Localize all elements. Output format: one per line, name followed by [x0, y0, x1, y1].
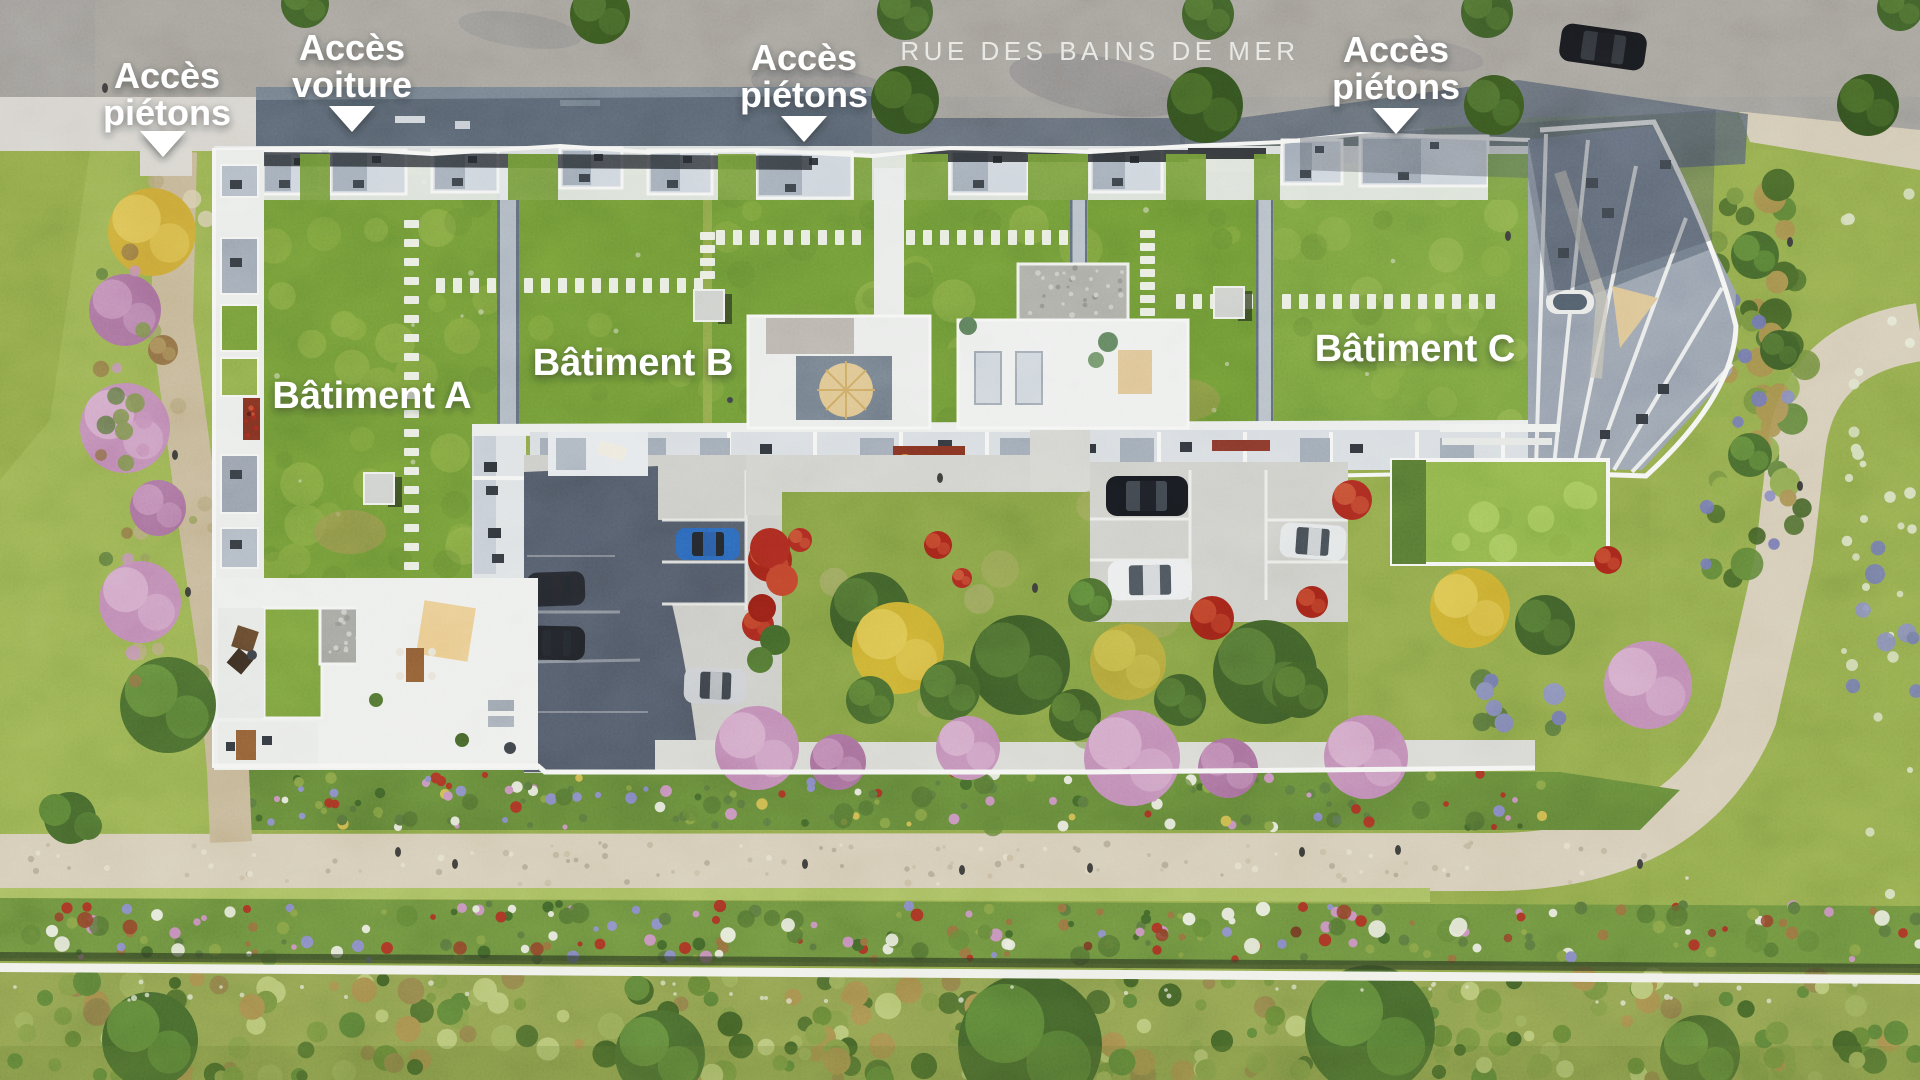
svg-text:piétons: piétons	[103, 92, 231, 133]
svg-text:Accès: Accès	[299, 27, 405, 68]
svg-text:Bâtiment A: Bâtiment A	[272, 375, 471, 417]
svg-text:Accès: Accès	[751, 37, 857, 78]
svg-text:Accès: Accès	[1343, 29, 1449, 70]
svg-text:piétons: piétons	[1332, 66, 1460, 107]
svg-text:voiture: voiture	[292, 64, 412, 105]
svg-text:Bâtiment B: Bâtiment B	[533, 342, 734, 384]
svg-text:piétons: piétons	[740, 74, 868, 115]
svg-text:RUE DES BAINS DE MER: RUE DES BAINS DE MER	[900, 36, 1299, 66]
svg-text:Accès: Accès	[114, 55, 220, 96]
svg-text:Bâtiment C: Bâtiment C	[1315, 328, 1516, 370]
